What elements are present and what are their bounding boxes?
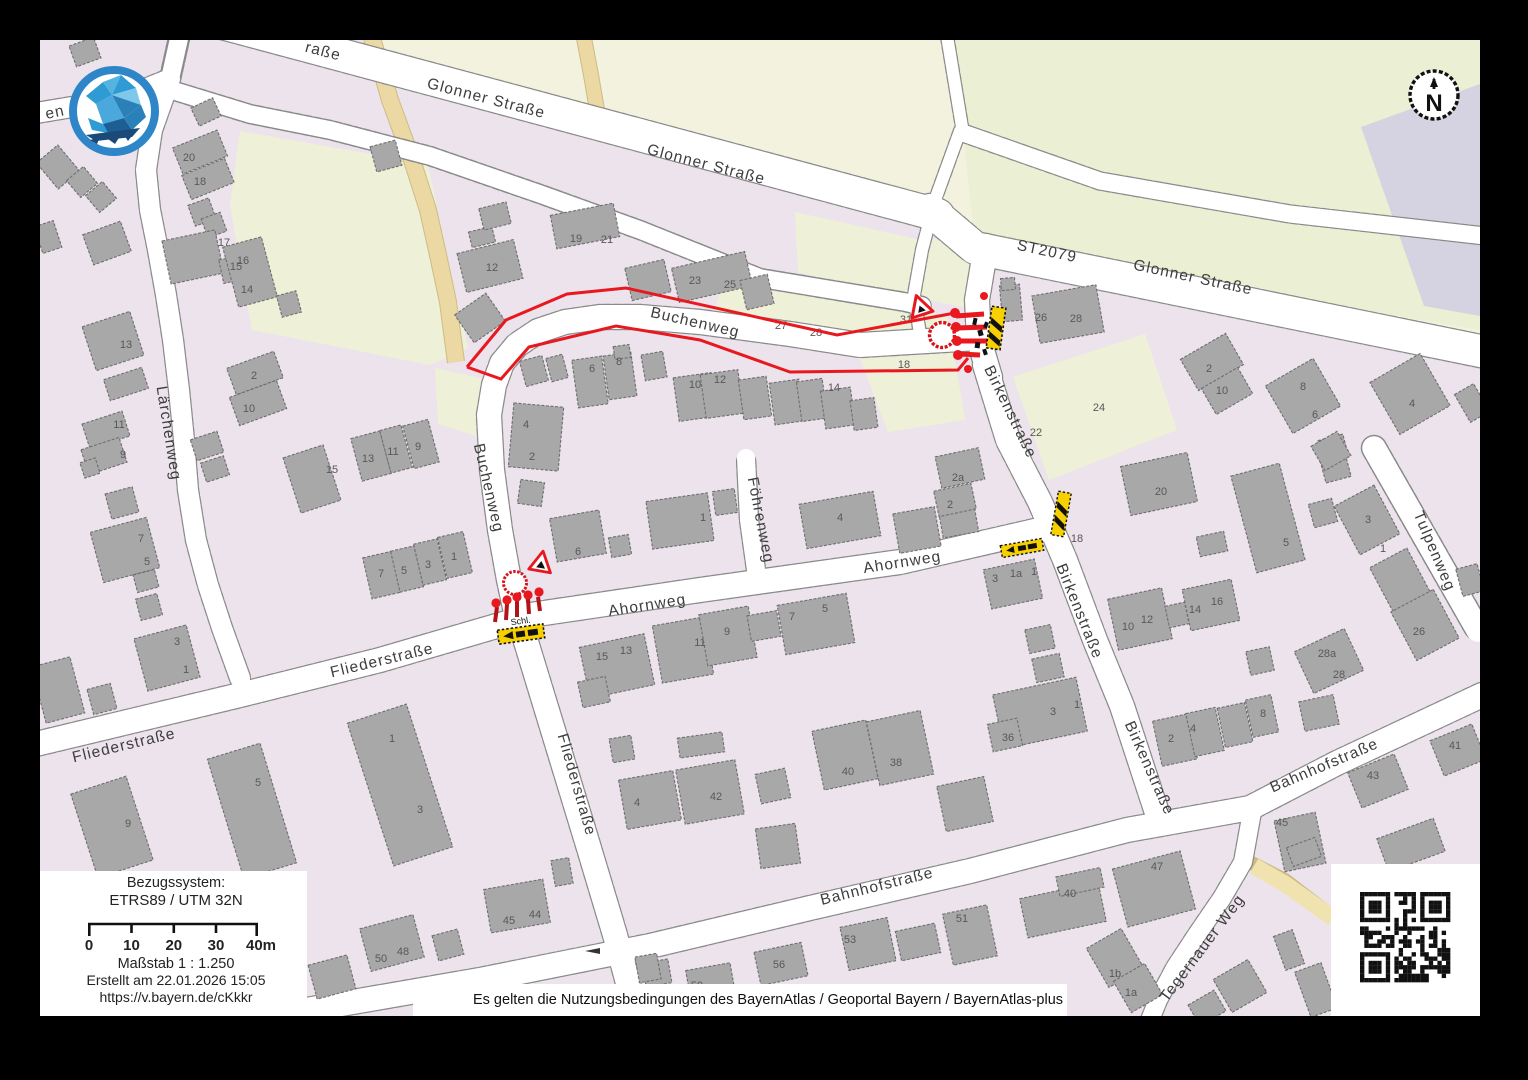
svg-text:30: 30 [208,937,225,954]
svg-text:24: 24 [1093,402,1105,414]
svg-text:3: 3 [1365,514,1371,526]
svg-text:28a: 28a [1318,648,1337,660]
svg-text:12: 12 [1141,614,1153,626]
svg-text:20: 20 [1155,486,1167,498]
svg-text:19: 19 [570,233,582,245]
svg-text:https://v.bayern.de/cKkkr: https://v.bayern.de/cKkkr [99,989,252,1005]
svg-text:6: 6 [575,546,581,558]
svg-text:1: 1 [389,733,395,745]
svg-text:1: 1 [1031,566,1037,578]
svg-text:9: 9 [415,441,421,453]
svg-text:45: 45 [503,915,515,927]
svg-text:23: 23 [689,275,701,287]
svg-text:7: 7 [138,533,144,545]
svg-text:28: 28 [1333,669,1345,681]
svg-text:47: 47 [1151,861,1163,873]
svg-text:10: 10 [1122,621,1134,633]
svg-text:3: 3 [174,636,180,648]
svg-text:7: 7 [378,568,384,580]
svg-text:36: 36 [1002,732,1014,744]
svg-text:3: 3 [425,559,431,571]
svg-text:38: 38 [890,757,902,769]
svg-text:9: 9 [724,626,730,638]
svg-text:26: 26 [1035,312,1047,324]
svg-text:25: 25 [724,279,736,291]
svg-text:48: 48 [397,946,409,958]
svg-text:14: 14 [1189,604,1201,616]
svg-text:15: 15 [596,651,608,663]
svg-text:3: 3 [1050,706,1056,718]
svg-text:1: 1 [700,512,706,524]
svg-text:1: 1 [1074,699,1080,711]
svg-text:18: 18 [1071,533,1083,545]
svg-text:50: 50 [375,953,387,965]
svg-text:40m: 40m [246,937,276,954]
svg-text:2: 2 [529,451,535,463]
svg-text:10: 10 [1216,385,1228,397]
svg-text:4: 4 [837,512,843,524]
svg-text:6: 6 [1312,409,1318,421]
svg-text:11: 11 [694,637,705,649]
svg-text:40: 40 [842,766,854,778]
svg-text:2: 2 [251,370,257,382]
svg-text:7: 7 [789,611,795,623]
svg-text:10: 10 [689,379,701,391]
svg-text:Es gelten die Nutzungsbedingun: Es gelten die Nutzungsbedingungen des Ba… [473,992,1063,1008]
svg-text:11: 11 [387,446,398,458]
svg-text:9: 9 [120,449,126,461]
svg-text:3: 3 [417,804,423,816]
svg-text:4: 4 [523,419,529,431]
svg-text:8: 8 [616,356,622,368]
svg-text:20: 20 [183,152,195,164]
svg-text:12: 12 [714,374,726,386]
svg-text:14: 14 [241,284,253,296]
svg-text:12: 12 [486,262,498,274]
svg-text:43: 43 [1367,770,1379,782]
svg-text:53: 53 [844,934,856,946]
svg-text:51: 51 [956,913,968,925]
svg-text:9: 9 [125,818,131,830]
svg-text:Bezugssystem:: Bezugssystem: [127,875,225,891]
svg-text:5: 5 [255,777,261,789]
svg-text:Erstellt am 22.01.2026 15:05: Erstellt am 22.01.2026 15:05 [86,972,265,988]
svg-text:45: 45 [1276,817,1288,829]
svg-text:44: 44 [529,909,541,921]
svg-text:1b: 1b [1109,968,1121,980]
svg-text:2a: 2a [952,472,965,484]
svg-text:28: 28 [1070,313,1082,325]
svg-text:0: 0 [85,937,93,954]
svg-text:8: 8 [1260,708,1266,720]
svg-text:5: 5 [401,565,407,577]
svg-text:42: 42 [710,791,722,803]
svg-text:N: N [1425,90,1442,117]
svg-text:11: 11 [113,419,124,431]
svg-text:10: 10 [243,403,255,415]
svg-text:16: 16 [1211,596,1223,608]
svg-text:13: 13 [362,453,374,465]
svg-text:4: 4 [1409,398,1415,410]
svg-text:13: 13 [120,339,132,351]
svg-text:8: 8 [1300,381,1306,393]
svg-text:26: 26 [1413,626,1425,638]
svg-text:5: 5 [144,556,150,568]
svg-text:ETRS89 / UTM 32N: ETRS89 / UTM 32N [109,892,242,909]
svg-text:18: 18 [194,176,206,188]
svg-text:1a: 1a [1125,987,1138,999]
svg-text:3: 3 [992,573,998,585]
svg-text:21: 21 [601,234,613,246]
svg-text:14: 14 [828,382,840,394]
svg-text:15: 15 [326,464,338,476]
svg-text:1: 1 [451,551,457,563]
svg-text:2: 2 [1206,363,1212,375]
svg-text:2: 2 [1168,733,1174,745]
svg-text:5: 5 [822,603,828,615]
svg-text:1a: 1a [1010,568,1023,580]
svg-text:1: 1 [1380,543,1386,555]
svg-text:56: 56 [773,959,785,971]
svg-text:4: 4 [634,797,640,809]
svg-text:6: 6 [589,363,595,375]
svg-text:5: 5 [1283,537,1289,549]
svg-text:41: 41 [1449,740,1461,752]
svg-text:20: 20 [165,937,182,954]
svg-text:10: 10 [123,937,140,954]
svg-text:4: 4 [1190,723,1196,735]
svg-text:2: 2 [947,499,953,511]
svg-text:Maßstab 1 : 1.250: Maßstab 1 : 1.250 [118,956,235,972]
svg-text:40: 40 [1064,888,1076,900]
svg-text:17: 17 [218,237,230,249]
svg-text:16: 16 [237,255,249,267]
svg-text:1: 1 [183,664,189,676]
svg-text:13: 13 [620,645,632,657]
